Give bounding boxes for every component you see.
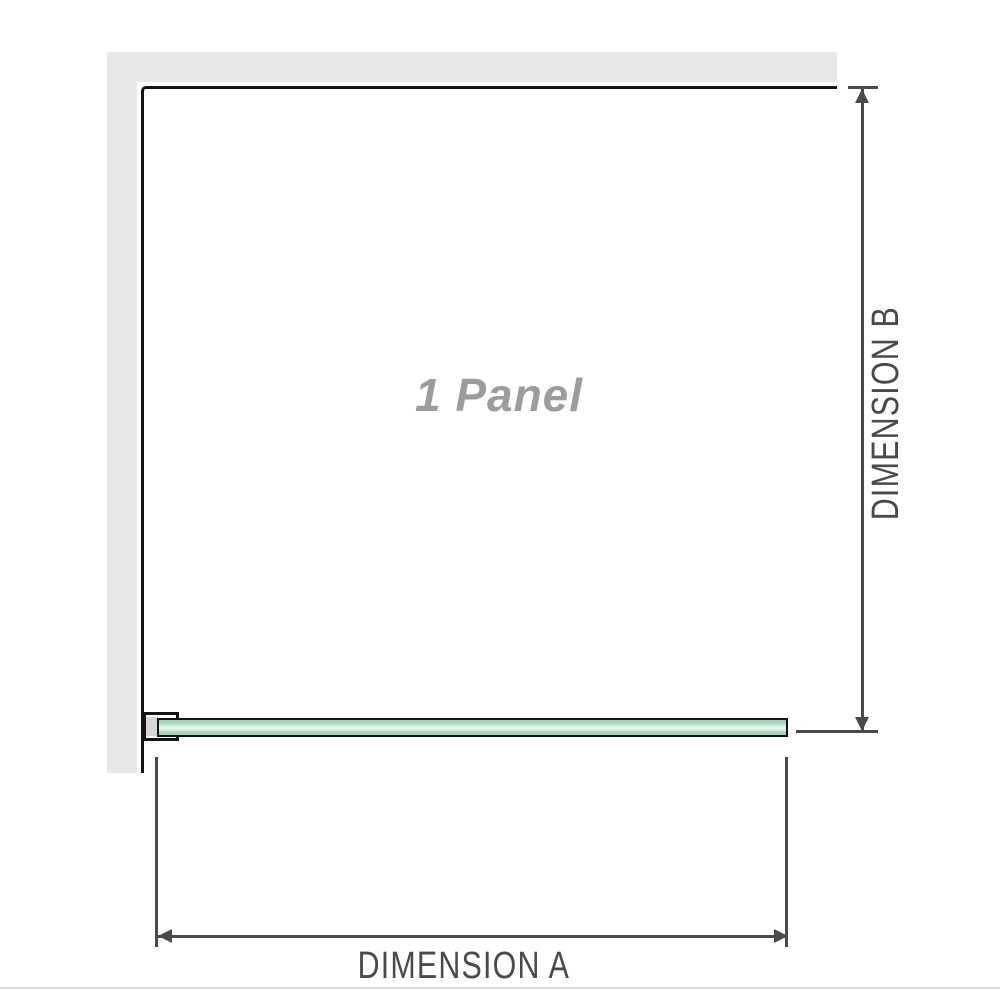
dimension-a-label: DIMENSION A bbox=[314, 944, 614, 988]
dimension-a-label-text: DIMENSION A bbox=[358, 944, 571, 988]
dimension-a-line bbox=[158, 935, 788, 938]
bottom-divider bbox=[0, 987, 1000, 989]
panel-outline bbox=[141, 86, 837, 773]
dimension-a-left-extension bbox=[155, 757, 158, 947]
dimension-a-right-extension bbox=[785, 757, 788, 947]
wall-left bbox=[107, 52, 137, 773]
arrow-down-icon bbox=[855, 717, 869, 731]
arrow-left-icon bbox=[158, 929, 172, 943]
panel-label: 1 Panel bbox=[349, 372, 649, 418]
dimension-b-label-text: DIMENSION B bbox=[864, 306, 908, 520]
dimension-b-label: DIMENSION B bbox=[864, 263, 908, 563]
glass-panel bbox=[157, 718, 788, 737]
wall-top bbox=[107, 52, 837, 82]
arrow-up-icon bbox=[855, 89, 869, 103]
arrow-right-icon bbox=[774, 929, 788, 943]
shower-panel-diagram: 1 Panel DIMENSION B DIMENSION A bbox=[0, 0, 1000, 1000]
